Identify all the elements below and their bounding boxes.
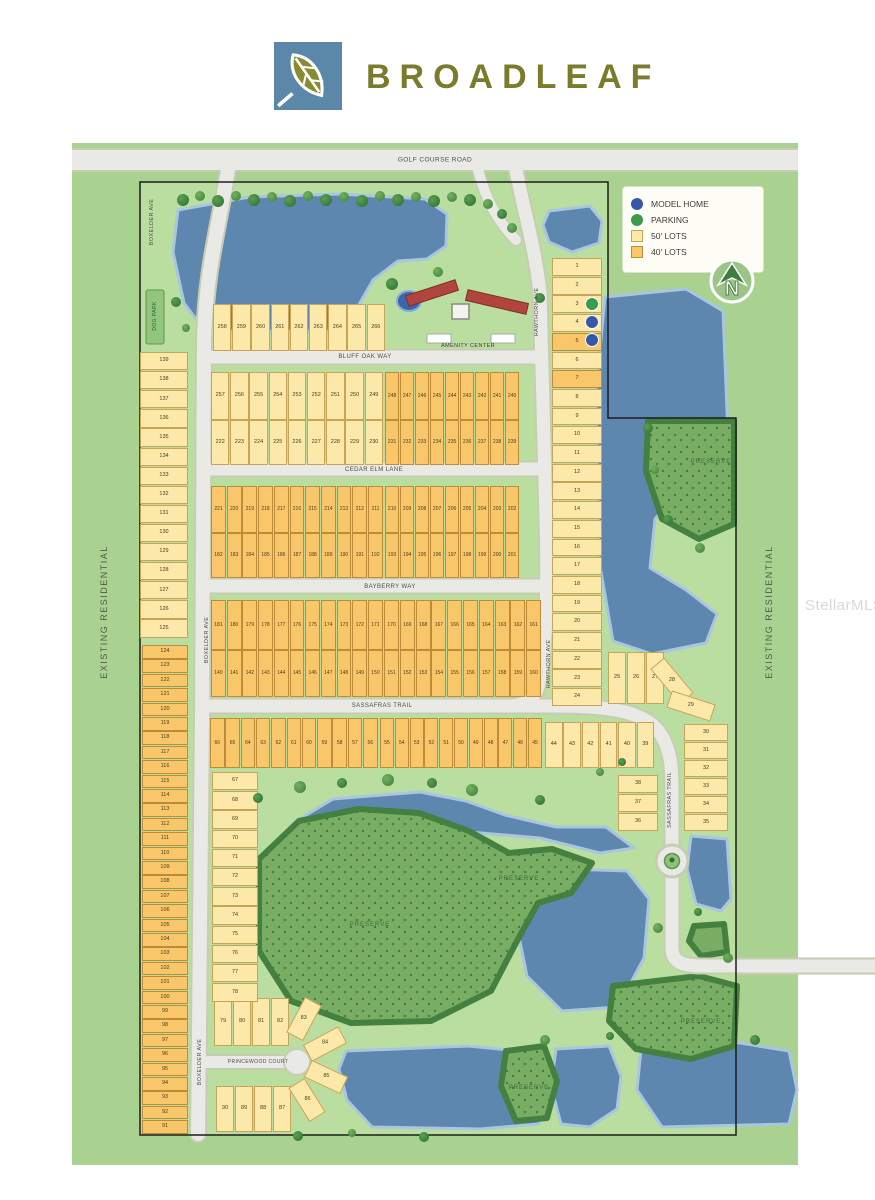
tree-icon	[293, 1131, 303, 1141]
lot-117: 117	[142, 746, 188, 760]
map-label: BOXELDER AVE	[204, 617, 210, 664]
lot-number: 36	[635, 819, 641, 825]
lot-172: 172	[352, 600, 367, 650]
lot-number: 110	[161, 851, 170, 857]
lot-59: 59	[317, 718, 332, 768]
lot-213: 213	[337, 486, 352, 533]
lot-number: 46	[517, 741, 523, 746]
lot-257: 257	[211, 372, 229, 420]
lot-93: 93	[142, 1091, 188, 1105]
lot-133: 133	[140, 467, 188, 485]
lot-number: 69	[232, 817, 238, 823]
lot-number: 155	[451, 671, 459, 676]
lot-211: 211	[368, 486, 383, 533]
lot-number: 80	[239, 1019, 245, 1025]
lot-number: 192	[371, 553, 379, 558]
lot-number: 75	[232, 932, 238, 938]
lot-number: 208	[418, 507, 426, 512]
lot-259: 259	[232, 304, 250, 351]
map-label: BLUFF OAK WAY	[338, 354, 391, 360]
lot-number: 217	[277, 507, 285, 512]
lot-161: 161	[526, 600, 541, 650]
lot-173: 173	[337, 600, 352, 650]
lot-53: 53	[410, 718, 424, 768]
map-label: PRESERVE	[691, 459, 732, 465]
lot-number: 51	[443, 741, 449, 746]
lot-127: 127	[140, 581, 188, 599]
lot-247: 247	[400, 372, 414, 420]
tree-icon	[466, 784, 478, 796]
lot-number: 171	[371, 623, 379, 628]
lot-120: 120	[142, 703, 188, 717]
lot-118: 118	[142, 731, 188, 745]
lot-number: 141	[230, 671, 238, 676]
lot-number: 30	[703, 730, 709, 736]
map-label: SASSAFRAS TRAIL	[352, 703, 413, 709]
tree-icon	[497, 209, 507, 219]
lot-number: 108	[160, 879, 169, 885]
lot-number: 6	[575, 358, 578, 364]
lot-96: 96	[142, 1048, 188, 1062]
lot-number: 260	[256, 325, 265, 331]
tree-icon	[231, 191, 241, 201]
lot-178: 178	[258, 600, 273, 650]
lot-number: 153	[419, 671, 427, 676]
lot-72: 72	[212, 868, 258, 886]
lot-number: 206	[448, 507, 456, 512]
lot-number: 230	[369, 440, 378, 446]
lot-156: 156	[463, 650, 478, 697]
tree-icon	[750, 1035, 760, 1045]
lot-242: 242	[475, 372, 489, 420]
lot-number: 245	[433, 394, 441, 399]
lot-255: 255	[249, 372, 267, 420]
lot-number: 100	[160, 995, 169, 1001]
lot-number: 22	[574, 657, 580, 663]
tree-icon	[535, 795, 545, 805]
lot-263: 263	[309, 304, 327, 351]
lot-number: 266	[371, 325, 380, 331]
lot-149: 149	[352, 650, 367, 697]
lot-number: 57	[352, 741, 358, 746]
lot-169: 169	[400, 600, 415, 650]
lot-148: 148	[337, 650, 352, 697]
lot-number: 128	[159, 568, 168, 574]
lot-252: 252	[307, 372, 325, 420]
lot-number: 176	[293, 623, 301, 628]
lot-248: 248	[385, 372, 399, 420]
lot-number: 33	[703, 784, 709, 790]
lot-107: 107	[142, 890, 188, 904]
lot-7: 7	[552, 370, 602, 388]
lot-171: 171	[368, 600, 383, 650]
lot-60: 60	[302, 718, 317, 768]
lot-131: 131	[140, 505, 188, 523]
lot-number: 172	[356, 623, 364, 628]
lot-number: 107	[160, 894, 169, 900]
lot-103: 103	[142, 947, 188, 961]
lot-35: 35	[684, 814, 728, 831]
lot-number: 227	[312, 440, 321, 446]
svg-text:N: N	[725, 278, 739, 300]
lot-205: 205	[460, 486, 474, 533]
lot-number: 177	[277, 623, 285, 628]
lot-132: 132	[140, 486, 188, 504]
lot-number: 195	[418, 553, 426, 558]
lot-212: 212	[352, 486, 367, 533]
lot-194: 194	[400, 533, 414, 578]
lot-244: 244	[445, 372, 459, 420]
map-label: CEDAR ELM LANE	[345, 467, 403, 473]
lot-151: 151	[384, 650, 399, 697]
lot-186: 186	[274, 533, 289, 578]
lot-200: 200	[490, 533, 504, 578]
lot-number: 158	[498, 671, 506, 676]
tree-icon	[337, 778, 347, 788]
lot-155: 155	[447, 650, 462, 697]
lot-31: 31	[684, 742, 728, 759]
lot-185: 185	[258, 533, 273, 578]
lot-number: 20	[574, 619, 580, 625]
broadleaf-logo	[274, 42, 342, 110]
lot-number: 60	[306, 741, 312, 746]
lot-261: 261	[271, 304, 289, 351]
lot-104: 104	[142, 933, 188, 947]
lot-251: 251	[326, 372, 344, 420]
lot-number: 222	[216, 440, 225, 446]
lot-94: 94	[142, 1077, 188, 1091]
lot-232: 232	[400, 420, 414, 465]
tree-icon	[339, 192, 349, 202]
lot-98: 98	[142, 1019, 188, 1033]
tree-icon	[606, 1032, 614, 1040]
lot-number: 106	[160, 908, 169, 914]
lot-160: 160	[526, 650, 541, 697]
lot-80: 80	[233, 998, 251, 1046]
lot-number: 134	[159, 454, 168, 460]
tree-icon	[419, 1132, 429, 1142]
lot-number: 59	[322, 741, 328, 746]
watermark: StellarMLS	[805, 597, 875, 614]
legend-label: MODEL HOME	[651, 199, 709, 209]
lot-52: 52	[424, 718, 438, 768]
lot-12: 12	[552, 464, 602, 482]
lot-number: 2	[575, 283, 578, 289]
lot-number: 214	[324, 507, 332, 512]
lot-number: 49	[473, 741, 479, 746]
lot-108: 108	[142, 875, 188, 889]
lot-number: 241	[493, 394, 501, 399]
lot-number: 174	[324, 623, 332, 628]
lot-number: 247	[403, 394, 411, 399]
map-label: BAYBERRY WAY	[364, 584, 415, 590]
lot-55: 55	[380, 718, 394, 768]
lot-number: 25	[614, 675, 620, 681]
lot-128: 128	[140, 562, 188, 580]
lot-24: 24	[552, 688, 602, 706]
lot-54: 54	[395, 718, 409, 768]
lot-246: 246	[415, 372, 429, 420]
lot-number: 209	[403, 507, 411, 512]
lot-number: 4	[575, 320, 578, 326]
lot-215: 215	[305, 486, 320, 533]
lot-number: 152	[403, 671, 411, 676]
lot-number: 99	[162, 1009, 168, 1015]
lot-11: 11	[552, 445, 602, 463]
tree-icon	[447, 192, 457, 202]
lot-92: 92	[142, 1106, 188, 1120]
tree-icon	[411, 192, 421, 202]
lot-99: 99	[142, 1005, 188, 1019]
lot-number: 40	[624, 742, 630, 748]
lot-number: 163	[498, 623, 506, 628]
lot-174: 174	[321, 600, 336, 650]
legend-item-model: MODEL HOME	[631, 198, 755, 210]
lot-189: 189	[321, 533, 336, 578]
lot-184: 184	[242, 533, 257, 578]
lot-181: 181	[211, 600, 226, 650]
lot-65: 65	[225, 718, 240, 768]
lot-number: 5	[575, 339, 578, 345]
lot-number: 111	[161, 836, 169, 842]
model-swatch	[631, 198, 643, 210]
lot-19: 19	[552, 595, 602, 613]
lot-number: 181	[214, 623, 222, 628]
lot-number: 91	[162, 1124, 168, 1130]
lot-number: 73	[232, 894, 238, 900]
lot-number: 96	[162, 1052, 168, 1058]
lot-number: 18	[574, 582, 580, 588]
lot-13: 13	[552, 482, 602, 500]
lot-227: 227	[307, 420, 325, 465]
lot-number: 231	[388, 440, 396, 445]
lot-number: 159	[514, 671, 522, 676]
lot-number: 130	[159, 530, 168, 536]
lot-number: 85	[323, 1074, 329, 1080]
lot-234: 234	[430, 420, 444, 465]
lot-number: 246	[418, 394, 426, 399]
lot-44: 44	[545, 722, 563, 768]
lot-81: 81	[252, 998, 270, 1046]
lot-number: 142	[246, 671, 254, 676]
tree-icon	[348, 1129, 356, 1137]
lot-number: 121	[160, 692, 169, 698]
lot-number: 242	[478, 394, 486, 399]
lot-126: 126	[140, 600, 188, 618]
lot-76: 76	[212, 945, 258, 963]
lot-number: 113	[161, 807, 170, 813]
lot-201: 201	[505, 533, 519, 578]
tree-icon	[507, 223, 517, 233]
lot-239: 239	[505, 420, 519, 465]
lot-number: 74	[232, 913, 238, 919]
lot-209: 209	[400, 486, 414, 533]
lot-number: 31	[703, 748, 709, 754]
lot-number: 149	[356, 671, 364, 676]
lot-number: 43	[569, 742, 575, 748]
tree-icon	[663, 515, 673, 525]
lot-number: 184	[246, 553, 254, 558]
legend-label: 40' LOTS	[651, 247, 687, 257]
lot-number: 9	[575, 414, 578, 420]
lot-number: 144	[277, 671, 285, 676]
map-label: BOXELDER AVE	[197, 1039, 203, 1086]
lot-number: 219	[246, 507, 254, 512]
lot-number: 118	[161, 735, 170, 741]
lot-number: 156	[466, 671, 474, 676]
tree-icon	[596, 768, 604, 776]
lot-number: 262	[294, 325, 303, 331]
lot-number: 207	[433, 507, 441, 512]
lot-number: 146	[308, 671, 316, 676]
lot-number: 253	[292, 393, 301, 399]
lot-21: 21	[552, 632, 602, 650]
lot-number: 39	[642, 742, 648, 748]
lot-141: 141	[227, 650, 242, 697]
lot-125: 125	[140, 619, 188, 637]
map-label: HAWTHORN AVE	[534, 288, 540, 337]
lot-number: 137	[159, 397, 168, 403]
lot-number: 179	[246, 623, 254, 628]
lot-183: 183	[227, 533, 242, 578]
lot-140: 140	[211, 650, 226, 697]
tree-icon	[428, 195, 440, 207]
lot-number: 98	[162, 1023, 168, 1029]
lot-number: 66	[214, 741, 220, 746]
lot-167: 167	[431, 600, 446, 650]
lot-177: 177	[274, 600, 289, 650]
lot-219: 219	[242, 486, 257, 533]
lot-number: 13	[574, 489, 580, 495]
lot-number: 261	[275, 325, 284, 331]
north-arrow: N	[709, 258, 755, 304]
lot-90: 90	[216, 1086, 234, 1132]
lot-168: 168	[416, 600, 431, 650]
lot-number: 35	[703, 820, 709, 826]
lot-243: 243	[460, 372, 474, 420]
lot-number: 249	[369, 393, 378, 399]
lot-number: 178	[261, 623, 269, 628]
lot-208: 208	[415, 486, 429, 533]
lot-number: 79	[220, 1019, 226, 1025]
lot-number: 147	[324, 671, 332, 676]
lot-number: 150	[371, 671, 379, 676]
lot-number: 120	[160, 707, 169, 713]
tree-icon	[695, 543, 705, 553]
lot-number: 61	[291, 741, 297, 746]
lot-32: 32	[684, 760, 728, 777]
map-label: PRESERVE	[350, 922, 391, 928]
tree-icon	[182, 324, 190, 332]
lot-33: 33	[684, 778, 728, 795]
lot-264: 264	[328, 304, 346, 351]
lot-144: 144	[274, 650, 289, 697]
lot-number: 202	[508, 507, 516, 512]
tree-icon	[723, 953, 733, 963]
lot-number: 62	[276, 741, 282, 746]
lot-number: 173	[340, 623, 348, 628]
lot-number: 127	[159, 588, 168, 594]
lot-number: 186	[277, 553, 285, 558]
lot-number: 28	[669, 678, 675, 684]
lot-229: 229	[345, 420, 363, 465]
lot-249: 249	[365, 372, 383, 420]
lot-87: 87	[273, 1086, 291, 1132]
tree-icon	[651, 466, 659, 474]
tree-icon	[195, 191, 205, 201]
map-label: HAWTHORN AVE	[546, 640, 552, 689]
lot-137: 137	[140, 390, 188, 408]
lot-23: 23	[552, 669, 602, 687]
map-label: SASSAFRAS TRAIL	[667, 772, 673, 828]
lot-number: 251	[331, 393, 340, 399]
lot-16: 16	[552, 539, 602, 557]
lot-220: 220	[227, 486, 242, 533]
lot-number: 204	[478, 507, 486, 512]
lot-37: 37	[618, 794, 658, 812]
lot-237: 237	[475, 420, 489, 465]
lot-number: 88	[260, 1106, 266, 1112]
lot-number: 132	[159, 492, 168, 498]
lot-225: 225	[269, 420, 287, 465]
lot-number: 148	[340, 671, 348, 676]
tree-icon	[540, 1035, 550, 1045]
lot-number: 197	[448, 553, 456, 558]
lot-number: 136	[159, 416, 168, 422]
lot-number: 77	[232, 970, 238, 976]
lot-57: 57	[348, 718, 363, 768]
lot-number: 168	[419, 623, 427, 628]
lot-number: 125	[159, 626, 168, 632]
lot-number: 90	[222, 1106, 228, 1112]
lot-number: 190	[340, 553, 348, 558]
lot-146: 146	[305, 650, 320, 697]
lot-190: 190	[337, 533, 352, 578]
lot-88: 88	[254, 1086, 272, 1132]
tree-icon	[177, 194, 189, 206]
lot-241: 241	[490, 372, 504, 420]
lot-67: 67	[212, 772, 258, 790]
tree-icon	[483, 199, 493, 209]
lot-58: 58	[332, 718, 347, 768]
parking-marker	[585, 297, 599, 311]
parking-swatch	[631, 214, 643, 226]
lot-number: 218	[261, 507, 269, 512]
lot-214: 214	[321, 486, 336, 533]
lot-112: 112	[142, 818, 188, 832]
lot-number: 182	[214, 553, 222, 558]
lot-number: 24	[574, 694, 580, 700]
lot-number: 104	[160, 937, 169, 943]
lot-number: 175	[308, 623, 316, 628]
lot-number: 135	[159, 435, 168, 441]
lot-73: 73	[212, 887, 258, 905]
lot-number: 17	[574, 563, 580, 569]
map-label: GOLF COURSE ROAD	[398, 157, 472, 164]
lot-47: 47	[498, 718, 512, 768]
lot-number: 58	[337, 741, 343, 746]
lot-22: 22	[552, 651, 602, 669]
lot-139: 139	[140, 352, 188, 370]
lot-193: 193	[385, 533, 399, 578]
lot-number: 114	[161, 793, 170, 799]
lot-number: 157	[482, 671, 490, 676]
lot-number: 103	[160, 951, 169, 957]
lot-number: 48	[488, 741, 494, 746]
lot-46: 46	[513, 718, 527, 768]
lot-number: 50	[458, 741, 464, 746]
lot-number: 161	[530, 623, 538, 628]
